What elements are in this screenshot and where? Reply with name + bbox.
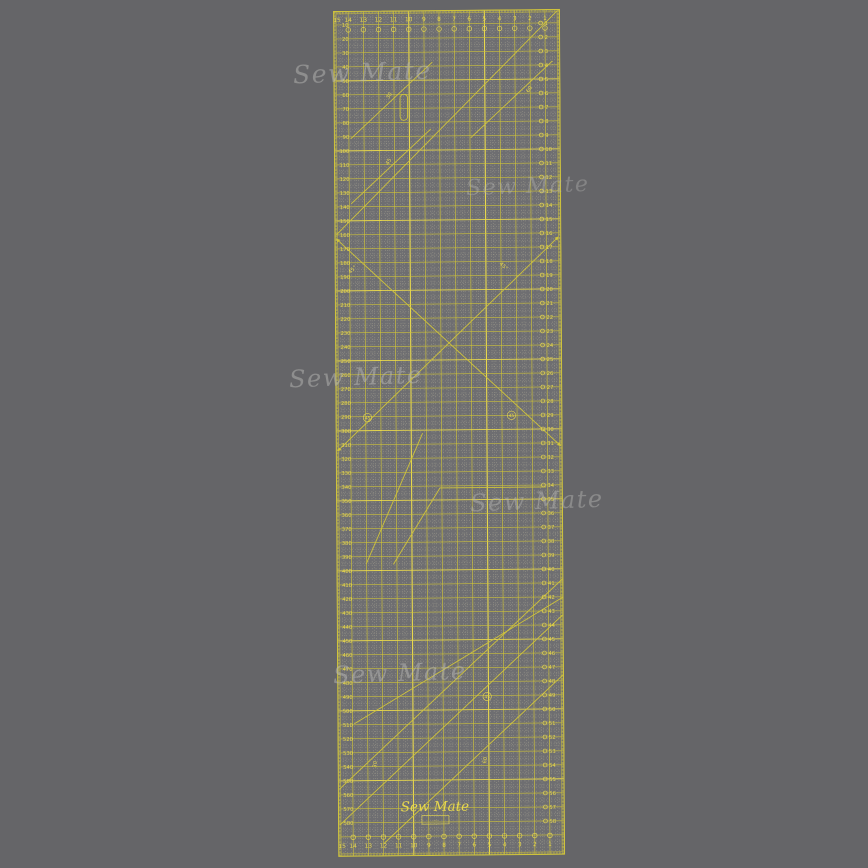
svg-text:39: 39 (548, 553, 555, 559)
svg-text:180: 180 (340, 261, 350, 267)
svg-text:43: 43 (548, 609, 555, 615)
svg-text:330: 330 (341, 471, 351, 477)
svg-text:34: 34 (547, 483, 554, 489)
svg-text:19: 19 (546, 273, 553, 279)
svg-text:51: 51 (549, 721, 556, 727)
svg-text:10: 10 (410, 843, 418, 849)
svg-text:380: 380 (342, 541, 352, 547)
svg-text:140: 140 (340, 205, 350, 211)
svg-text:9: 9 (545, 133, 548, 139)
svg-text:27: 27 (547, 385, 554, 391)
svg-text:58: 58 (549, 819, 556, 825)
svg-text:52: 52 (549, 735, 556, 741)
svg-text:12: 12 (546, 175, 553, 181)
svg-text:160: 160 (340, 233, 350, 239)
svg-text:9: 9 (427, 843, 431, 849)
svg-text:25: 25 (547, 357, 554, 363)
svg-text:5: 5 (483, 17, 487, 23)
svg-text:11: 11 (545, 161, 552, 167)
svg-text:7: 7 (457, 843, 461, 849)
svg-text:8: 8 (437, 17, 441, 23)
svg-text:37: 37 (548, 525, 555, 531)
svg-text:2: 2 (528, 16, 532, 22)
svg-text:260: 260 (341, 373, 351, 379)
svg-text:4: 4 (498, 16, 502, 22)
svg-text:20: 20 (342, 37, 349, 43)
svg-text:35: 35 (547, 497, 554, 503)
svg-text:45: 45 (484, 694, 490, 700)
svg-text:410: 410 (342, 583, 352, 589)
svg-text:250: 250 (341, 359, 351, 365)
svg-text:170: 170 (340, 247, 350, 253)
svg-text:30: 30 (372, 761, 379, 769)
svg-text:14: 14 (350, 844, 358, 850)
svg-text:100: 100 (339, 149, 349, 155)
svg-text:8: 8 (442, 843, 446, 849)
quilting-ruler: 45°45°3060453060454545151413121110987654… (333, 9, 565, 857)
svg-text:400: 400 (342, 569, 352, 575)
svg-text:33: 33 (547, 469, 554, 475)
svg-text:4: 4 (503, 842, 507, 848)
svg-text:60: 60 (482, 757, 489, 765)
svg-text:12: 12 (375, 18, 383, 24)
svg-text:430: 430 (342, 611, 352, 617)
svg-text:3: 3 (513, 16, 517, 22)
svg-text:220: 220 (340, 317, 350, 323)
svg-text:·····: ····· (432, 818, 438, 823)
svg-text:420: 420 (342, 597, 352, 603)
svg-text:7: 7 (452, 17, 456, 23)
svg-text:70: 70 (342, 107, 349, 113)
svg-text:Sew Mate: Sew Mate (401, 799, 469, 816)
svg-text:390: 390 (342, 555, 352, 561)
svg-text:340: 340 (341, 485, 351, 491)
svg-text:22: 22 (546, 315, 553, 321)
svg-text:530: 530 (343, 751, 353, 757)
svg-text:270: 270 (341, 387, 351, 393)
svg-text:45: 45 (548, 637, 555, 643)
svg-text:560: 560 (343, 793, 353, 799)
svg-text:56: 56 (549, 791, 556, 797)
svg-text:470: 470 (343, 667, 353, 673)
svg-text:18: 18 (546, 259, 553, 265)
svg-text:32: 32 (547, 455, 554, 461)
svg-text:1: 1 (545, 21, 548, 27)
svg-text:49: 49 (549, 693, 556, 699)
svg-text:14: 14 (546, 203, 553, 209)
svg-text:26: 26 (547, 371, 554, 377)
svg-text:6: 6 (545, 91, 548, 97)
svg-text:310: 310 (341, 443, 351, 449)
svg-text:460: 460 (343, 653, 353, 659)
svg-text:50: 50 (549, 707, 556, 713)
svg-text:130: 130 (340, 191, 350, 197)
svg-text:520: 520 (343, 737, 353, 743)
svg-text:10: 10 (405, 17, 413, 23)
svg-text:80: 80 (343, 121, 350, 127)
svg-text:280: 280 (341, 401, 351, 407)
svg-text:17: 17 (546, 245, 553, 251)
svg-text:44: 44 (548, 623, 555, 629)
svg-text:20: 20 (546, 287, 553, 293)
svg-text:200: 200 (340, 289, 350, 295)
svg-text:120: 120 (340, 177, 350, 183)
svg-text:15: 15 (333, 18, 341, 24)
svg-text:190: 190 (340, 275, 350, 281)
svg-text:45: 45 (509, 413, 515, 419)
svg-text:370: 370 (342, 527, 352, 533)
svg-text:90: 90 (343, 135, 350, 141)
svg-text:510: 510 (343, 723, 353, 729)
svg-text:· · · · · · · ·: · · · · · · · · (429, 826, 442, 830)
svg-text:31: 31 (547, 441, 554, 447)
svg-text:2: 2 (533, 842, 537, 848)
svg-text:12: 12 (380, 843, 388, 849)
svg-text:150: 150 (340, 219, 350, 225)
svg-text:46: 46 (548, 651, 555, 657)
svg-text:10: 10 (545, 147, 552, 153)
svg-text:29: 29 (547, 413, 554, 419)
svg-text:11: 11 (390, 17, 398, 23)
svg-text:36: 36 (548, 511, 555, 517)
svg-text:290: 290 (341, 415, 351, 421)
svg-text:45: 45 (365, 415, 371, 421)
svg-text:21: 21 (546, 301, 553, 307)
svg-text:490: 490 (343, 695, 353, 701)
svg-text:10: 10 (342, 23, 349, 29)
svg-text:30: 30 (342, 51, 349, 57)
svg-text:54: 54 (549, 763, 556, 769)
svg-text:5: 5 (488, 842, 492, 848)
svg-text:9: 9 (422, 17, 426, 23)
svg-text:15: 15 (546, 217, 553, 223)
svg-text:6: 6 (472, 843, 476, 849)
svg-text:110: 110 (340, 163, 350, 169)
svg-text:210: 210 (340, 303, 350, 309)
svg-text:8: 8 (545, 119, 548, 125)
photo-scene: 45°45°3060453060454545151413121110987654… (0, 0, 868, 868)
svg-text:48: 48 (549, 679, 556, 685)
svg-text:40: 40 (548, 567, 555, 573)
svg-text:16: 16 (546, 231, 553, 237)
svg-text:5: 5 (545, 77, 548, 83)
svg-text:38: 38 (548, 539, 555, 545)
svg-text:42: 42 (548, 595, 555, 601)
svg-text:320: 320 (341, 457, 351, 463)
svg-text:230: 230 (341, 331, 351, 337)
svg-text:2: 2 (545, 35, 548, 41)
svg-text:23: 23 (546, 329, 553, 335)
svg-text:480: 480 (343, 681, 353, 687)
svg-text:550: 550 (343, 779, 353, 785)
ruler-graphic: 45°45°3060453060454545151413121110987654… (333, 9, 565, 857)
svg-text:440: 440 (342, 625, 352, 631)
svg-text:53: 53 (549, 749, 556, 755)
svg-text:15: 15 (338, 844, 346, 850)
svg-text:13: 13 (546, 189, 553, 195)
svg-text:300: 300 (341, 429, 351, 435)
svg-text:580: 580 (344, 821, 354, 827)
svg-text:6: 6 (467, 17, 471, 23)
svg-text:500: 500 (343, 709, 353, 715)
svg-text:7: 7 (545, 105, 548, 111)
svg-text:11: 11 (395, 843, 403, 849)
svg-text:3: 3 (518, 842, 522, 848)
svg-text:40: 40 (342, 65, 349, 71)
svg-text:1: 1 (548, 842, 552, 848)
svg-text:57: 57 (549, 805, 556, 811)
svg-text:540: 540 (343, 765, 353, 771)
svg-text:570: 570 (343, 807, 353, 813)
svg-text:3: 3 (545, 49, 548, 55)
svg-text:41: 41 (548, 581, 555, 587)
svg-text:13: 13 (360, 18, 368, 24)
svg-text:50: 50 (342, 79, 349, 85)
svg-text:47: 47 (549, 665, 556, 671)
svg-text:450: 450 (342, 639, 352, 645)
svg-text:30: 30 (547, 427, 554, 433)
svg-text:360: 360 (342, 513, 352, 519)
svg-text:350: 350 (342, 499, 352, 505)
svg-text:28: 28 (547, 399, 554, 405)
svg-text:24: 24 (547, 343, 554, 349)
svg-text:13: 13 (365, 844, 373, 850)
svg-text:60: 60 (342, 93, 349, 99)
svg-text:55: 55 (549, 777, 556, 783)
svg-text:240: 240 (341, 345, 351, 351)
